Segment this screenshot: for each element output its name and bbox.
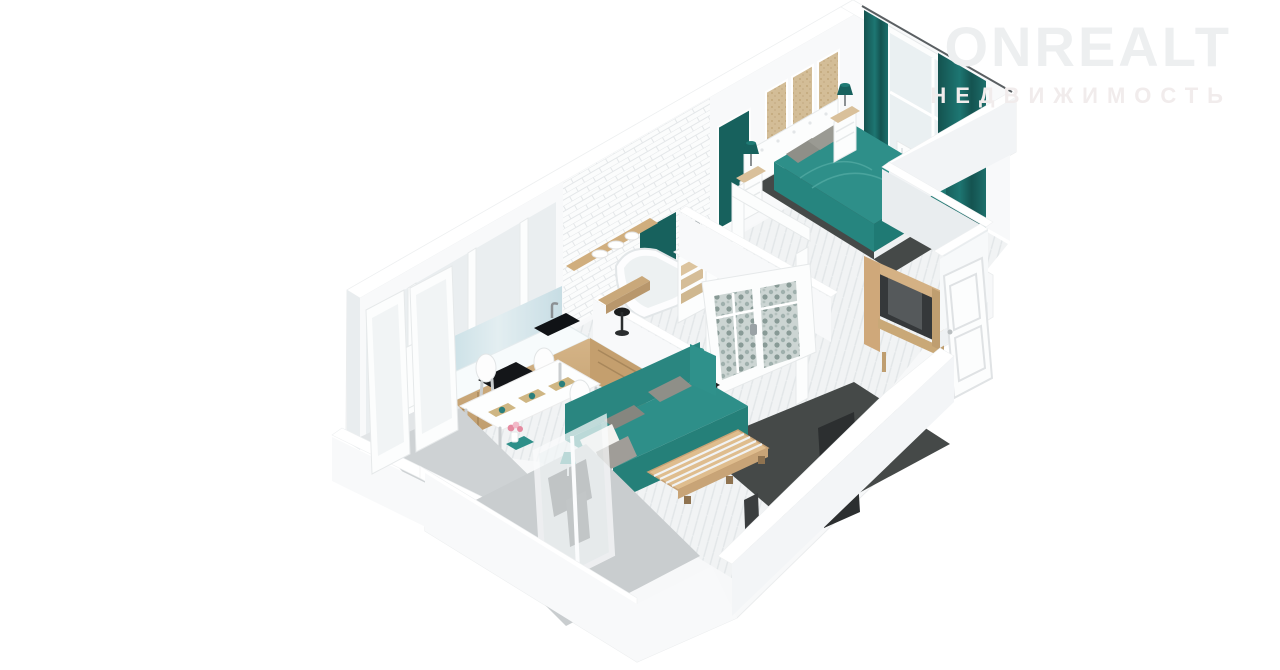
door-knob — [948, 330, 953, 335]
wardrobe-pillar — [864, 256, 880, 352]
floorplan-svg — [0, 0, 1280, 670]
door-handles — [750, 324, 757, 335]
french-door-glass-right — [760, 281, 800, 368]
floorplan-render: ONREALT НЕДВИЖИМОСТЬ — [0, 0, 1280, 670]
left-wall-edge — [347, 290, 360, 450]
